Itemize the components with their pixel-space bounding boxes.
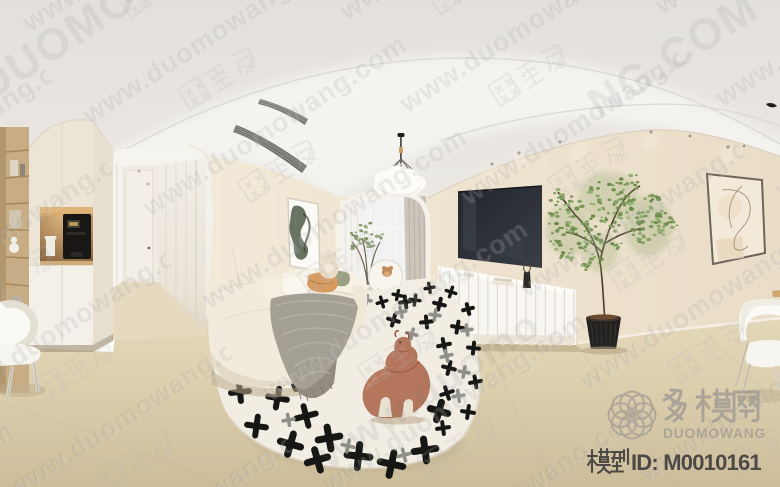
svg-text:ID: M0010161: ID: M0010161 <box>631 450 761 475</box>
svg-text:DUOMOWANG: DUOMOWANG <box>663 426 766 441</box>
